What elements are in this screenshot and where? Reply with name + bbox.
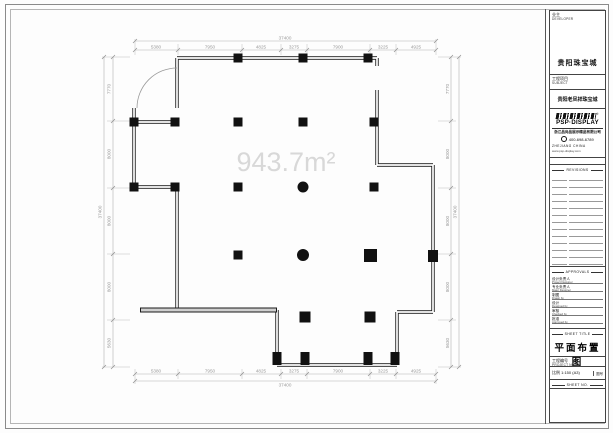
subject-name-box: 贵阳老凤祥珠宝城 — [550, 90, 605, 109]
developer-label-en: DEVELOPER — [552, 17, 603, 21]
dim-right-3: 8000 — [445, 281, 450, 292]
subject-label-en: SUBJECT — [552, 81, 603, 85]
approval-row: 设计负责人 Project Designer — [552, 276, 603, 284]
sheet-title-box: SHEET TITLE 平面布置图 — [550, 329, 605, 357]
revisions-header: REVISIONS — [566, 168, 588, 172]
dim-left-2: 8000 — [107, 215, 112, 226]
dim-bottom-0: 5380 — [151, 369, 162, 374]
dim-bottom-1: 7950 — [205, 369, 216, 374]
subject-name: 贵阳老凤祥珠宝城 — [557, 96, 597, 103]
dim-right-1: 8000 — [445, 148, 450, 159]
panel-divider — [545, 9, 546, 424]
dim-top-0: 5380 — [151, 45, 162, 50]
dim-bottom-5: 3225 — [378, 369, 389, 374]
registered-mark: ® — [596, 113, 598, 116]
door-swing-arc — [137, 68, 177, 108]
dimension-ticks — [102, 39, 461, 383]
dimension-extension-lines — [102, 39, 461, 384]
dim-bottom-6: 4925 — [411, 369, 422, 374]
revision-row — [552, 202, 603, 209]
approval-row: 专业负责人 Major Designer — [552, 284, 603, 292]
drawing-no-label: 图号 — [593, 371, 603, 376]
logo-wordmark: PSP·DISPLAY — [552, 120, 603, 126]
company-name: 浙江品尚品展示精品有限公司 — [552, 128, 603, 135]
approval-row: 批准 Approved by — [552, 316, 603, 324]
dim-bottom-4: 7900 — [333, 369, 344, 374]
dim-top-5: 3225 — [378, 45, 389, 50]
dim-overall-bottom: 37400 — [279, 383, 292, 388]
dim-left-3: 8000 — [107, 281, 112, 292]
dim-left-1: 8000 — [107, 148, 112, 159]
dim-bottom-2: 4825 — [256, 369, 267, 374]
empty-box — [550, 389, 605, 422]
revision-row — [552, 181, 603, 188]
revisions-box: REVISIONS — [550, 165, 605, 267]
developer-name: 贵阳珠宝城 — [550, 58, 605, 68]
revision-row — [552, 188, 603, 195]
sheet-title-header: SHEET TITLE — [565, 332, 591, 336]
dimension-lines — [104, 41, 459, 381]
scale-label: 比例 — [552, 370, 560, 375]
approval-row: 设计 Designed by — [552, 300, 603, 308]
revision-row — [552, 209, 603, 216]
dim-top-3: 3275 — [289, 45, 300, 50]
dim-overall-left: 37400 — [98, 205, 103, 218]
approvals-box: APPROVALS 设计负责人 Project Designer 专业负责人 M… — [550, 267, 605, 329]
project-no-box: 工程编号 PROJECT NO. — [550, 357, 605, 367]
dim-left-4: 5630 — [107, 337, 112, 348]
revision-row — [552, 216, 603, 223]
revision-row — [552, 195, 603, 202]
revision-row — [552, 244, 603, 251]
dim-right-4: 5630 — [445, 337, 450, 348]
dim-right-2: 8000 — [445, 215, 450, 226]
dim-right-0: 7770 — [445, 83, 450, 94]
walls — [134, 58, 433, 365]
dim-overall-right: 37400 — [453, 205, 458, 218]
developer-box: 业主 DEVELOPER 贵阳珠宝城 — [550, 11, 605, 75]
dim-top-4: 7900 — [333, 45, 344, 50]
revision-row — [552, 230, 603, 237]
title-block: 业主 DEVELOPER 贵阳珠宝城 工程项目 SUBJECT 贵阳老凤祥珠宝城… — [549, 10, 606, 423]
dim-bottom-3: 3275 — [289, 369, 300, 374]
revision-row — [552, 237, 603, 244]
dim-overall-top: 37400 — [279, 36, 292, 41]
company-region: ZHEJIANG CHINA — [552, 144, 603, 148]
area-label: 943.7m² — [236, 147, 335, 177]
dim-left-0: 7770 — [107, 83, 112, 94]
sheet-no-box: SHEET NO. — [550, 380, 605, 389]
approval-row: 审核 Checked by — [552, 308, 603, 316]
dim-top-1: 7950 — [205, 45, 216, 50]
spacer-box — [550, 158, 605, 165]
revision-row — [552, 258, 603, 265]
revision-row — [552, 174, 603, 181]
phone-number: 400-698-6789 — [569, 137, 594, 142]
subject-label-box: 工程项目 SUBJECT — [550, 75, 605, 90]
approvals-header: APPROVALS — [566, 270, 590, 274]
scale-box: 比例 1:150 (A3) 图号 — [550, 367, 605, 380]
psp-logo-icon — [556, 113, 597, 119]
revision-row — [552, 251, 603, 258]
revision-row — [552, 223, 603, 230]
scale-value: 1:150 (A3) — [561, 370, 580, 375]
company-logo-box: ® PSP·DISPLAY 浙江品尚品展示精品有限公司 400-698-6789… — [550, 109, 605, 158]
approval-row: 制图 Drawn by — [552, 292, 603, 300]
phone-icon — [561, 136, 567, 142]
floor-plan: 37400 5380 7950 4825 3275 7900 3225 4925… — [0, 0, 545, 433]
dim-top-2: 4825 — [256, 45, 267, 50]
company-website: www.psp-display.com — [552, 149, 603, 153]
dim-top-6: 4925 — [411, 45, 422, 50]
sheet-no-header: SHEET NO. — [567, 383, 589, 387]
drawing-sheet: 37400 5380 7950 4825 3275 7900 3225 4925… — [0, 0, 613, 433]
